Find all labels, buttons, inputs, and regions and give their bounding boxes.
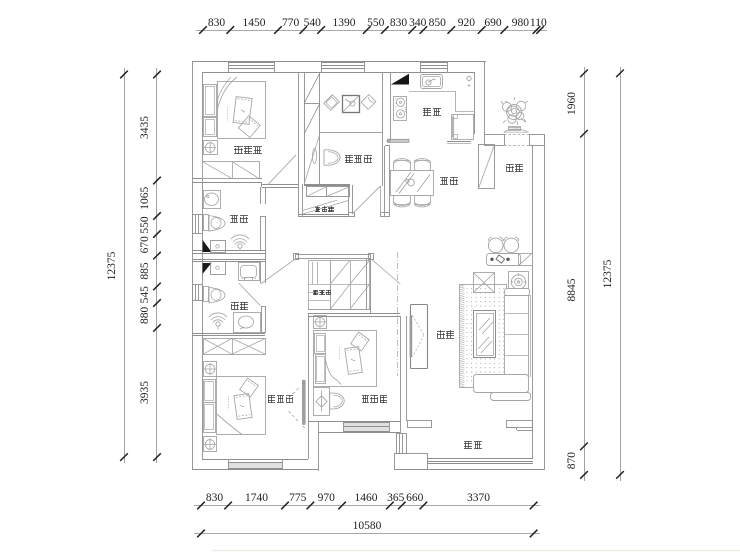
svg-text:3370: 3370 xyxy=(467,492,490,504)
svg-text:540: 540 xyxy=(304,17,322,29)
svg-text:1390: 1390 xyxy=(333,17,356,29)
svg-text:775: 775 xyxy=(289,492,307,504)
svg-text:980: 980 xyxy=(512,17,530,29)
svg-text:110: 110 xyxy=(530,17,547,29)
svg-text:870: 870 xyxy=(566,452,578,470)
svg-text:690: 690 xyxy=(484,17,502,29)
svg-text:670: 670 xyxy=(139,236,151,254)
svg-text:880: 880 xyxy=(139,307,151,325)
svg-text:545: 545 xyxy=(139,286,151,304)
svg-text:1450: 1450 xyxy=(243,17,266,29)
svg-text:550: 550 xyxy=(139,216,151,234)
svg-text:885: 885 xyxy=(139,262,151,280)
svg-text:12375: 12375 xyxy=(106,251,118,280)
svg-text:3435: 3435 xyxy=(139,116,151,139)
svg-text:660: 660 xyxy=(406,492,424,504)
svg-text:3935: 3935 xyxy=(139,381,151,404)
svg-text:970: 970 xyxy=(318,492,336,504)
svg-text:1065: 1065 xyxy=(139,186,151,209)
svg-text:365: 365 xyxy=(387,492,405,504)
svg-text:1460: 1460 xyxy=(355,492,378,504)
svg-text:920: 920 xyxy=(458,17,476,29)
svg-text:830: 830 xyxy=(206,492,224,504)
svg-text:12375: 12375 xyxy=(602,259,614,288)
svg-text:850: 850 xyxy=(429,17,447,29)
svg-text:550: 550 xyxy=(367,17,385,29)
svg-text:8845: 8845 xyxy=(566,278,578,301)
svg-text:770: 770 xyxy=(282,17,300,29)
svg-text:830: 830 xyxy=(208,17,226,29)
svg-text:1960: 1960 xyxy=(566,92,578,115)
svg-text:830: 830 xyxy=(390,17,408,29)
svg-text:1740: 1740 xyxy=(245,492,268,504)
svg-text:10580: 10580 xyxy=(353,520,382,532)
svg-text:340: 340 xyxy=(409,17,427,29)
